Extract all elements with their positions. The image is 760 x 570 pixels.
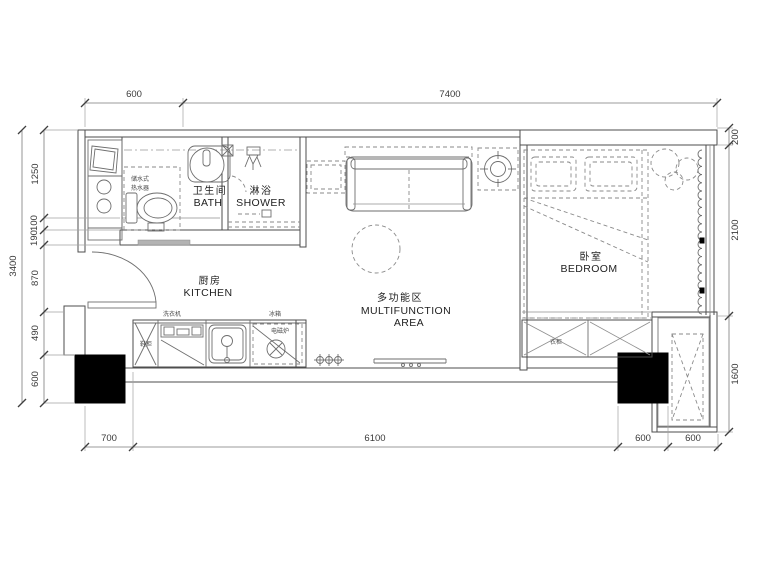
- door-leaf: [88, 302, 156, 308]
- bed: [524, 150, 648, 318]
- sofa: [345, 147, 472, 211]
- room-label-multifunction-zh: 多功能区: [377, 291, 423, 304]
- room-label-bedroom-zh: 卧室: [580, 250, 603, 263]
- pendant-lamp-icon: [478, 148, 518, 190]
- dim-bottom-6100: 6100: [364, 433, 385, 444]
- dim-left-190: 190: [29, 230, 40, 246]
- toilet-icon: [126, 193, 177, 231]
- bedroom-window: [698, 145, 714, 315]
- dim-bottom-700: 700: [101, 433, 117, 444]
- label-fridge: 冰箱: [269, 310, 281, 318]
- room-label-kitchen-zh: 厨房: [199, 274, 222, 287]
- kitchen-counter: [133, 320, 306, 368]
- shower-head-icon: [245, 147, 261, 170]
- column-right: [618, 353, 668, 403]
- dim-left-total: 3400: [8, 255, 19, 276]
- dim-top-600: 600: [126, 89, 142, 100]
- label-water-heater-2: 热水器: [131, 184, 149, 192]
- label-washing-machine: 洗衣机: [163, 310, 181, 318]
- dim-bottom-600b: 600: [685, 433, 701, 444]
- side-table: [307, 161, 345, 193]
- entry-cabinet: [88, 140, 122, 240]
- balcony-ac-platform: [672, 334, 703, 420]
- floorplan-canvas: 600 7400 3400 1250 100 190 870 490 600 2…: [0, 0, 760, 570]
- washing-machine-icon: [161, 325, 204, 365]
- room-label-multifunction-en2: AREA: [394, 317, 424, 329]
- column-left: [75, 355, 125, 403]
- dim-bottom-600a: 600: [635, 433, 651, 444]
- room-label-kitchen-en: KITCHEN: [184, 287, 233, 299]
- room-label-bedroom-en: BEDROOM: [560, 263, 617, 275]
- dim-left-870: 870: [30, 270, 41, 286]
- label-water-heater-1: 储水式: [131, 175, 149, 183]
- label-wardrobe: 衣柜: [550, 338, 562, 346]
- dim-left-490: 490: [30, 325, 41, 341]
- dim-left-1250: 1250: [30, 163, 41, 184]
- room-label-multifunction-en1: MULTIFUNCTION: [361, 305, 451, 317]
- wardrobe: [522, 312, 652, 357]
- label-induction-cooker: 电磁炉: [271, 327, 289, 335]
- floorplan-drawing: 600 7400 3400 1250 100 190 870 490 600 2…: [0, 0, 760, 570]
- room-label-bath-zh: 卫生间: [193, 184, 228, 197]
- room-label-bath-en: BATH: [194, 197, 223, 209]
- plant-icon: [651, 149, 698, 190]
- burner-icon: [97, 199, 111, 213]
- dim-right-2100: 2100: [730, 219, 741, 240]
- floor-drain-icon: [262, 210, 271, 217]
- dim-top-7400: 7400: [439, 89, 460, 100]
- wall-tv-icon: [374, 359, 446, 367]
- dim-right-1600: 1600: [730, 363, 741, 384]
- dim-left-600: 600: [30, 371, 41, 387]
- spotlights: [314, 354, 344, 366]
- round-table: [352, 225, 400, 273]
- door-swing-arc: [92, 252, 156, 302]
- dim-right-200: 200: [730, 129, 741, 145]
- threshold: [138, 240, 190, 245]
- label-shoe-cabinet: 鞋柜: [140, 340, 152, 348]
- kitchen-sink-icon: [209, 325, 246, 363]
- dim-left-100: 100: [29, 215, 40, 231]
- spotlight-icon: [332, 354, 344, 366]
- entry-door: [88, 252, 156, 308]
- room-label-shower-zh: 淋浴: [250, 184, 273, 197]
- room-label-shower-en: SHOWER: [236, 197, 286, 209]
- burner-icon: [97, 180, 111, 194]
